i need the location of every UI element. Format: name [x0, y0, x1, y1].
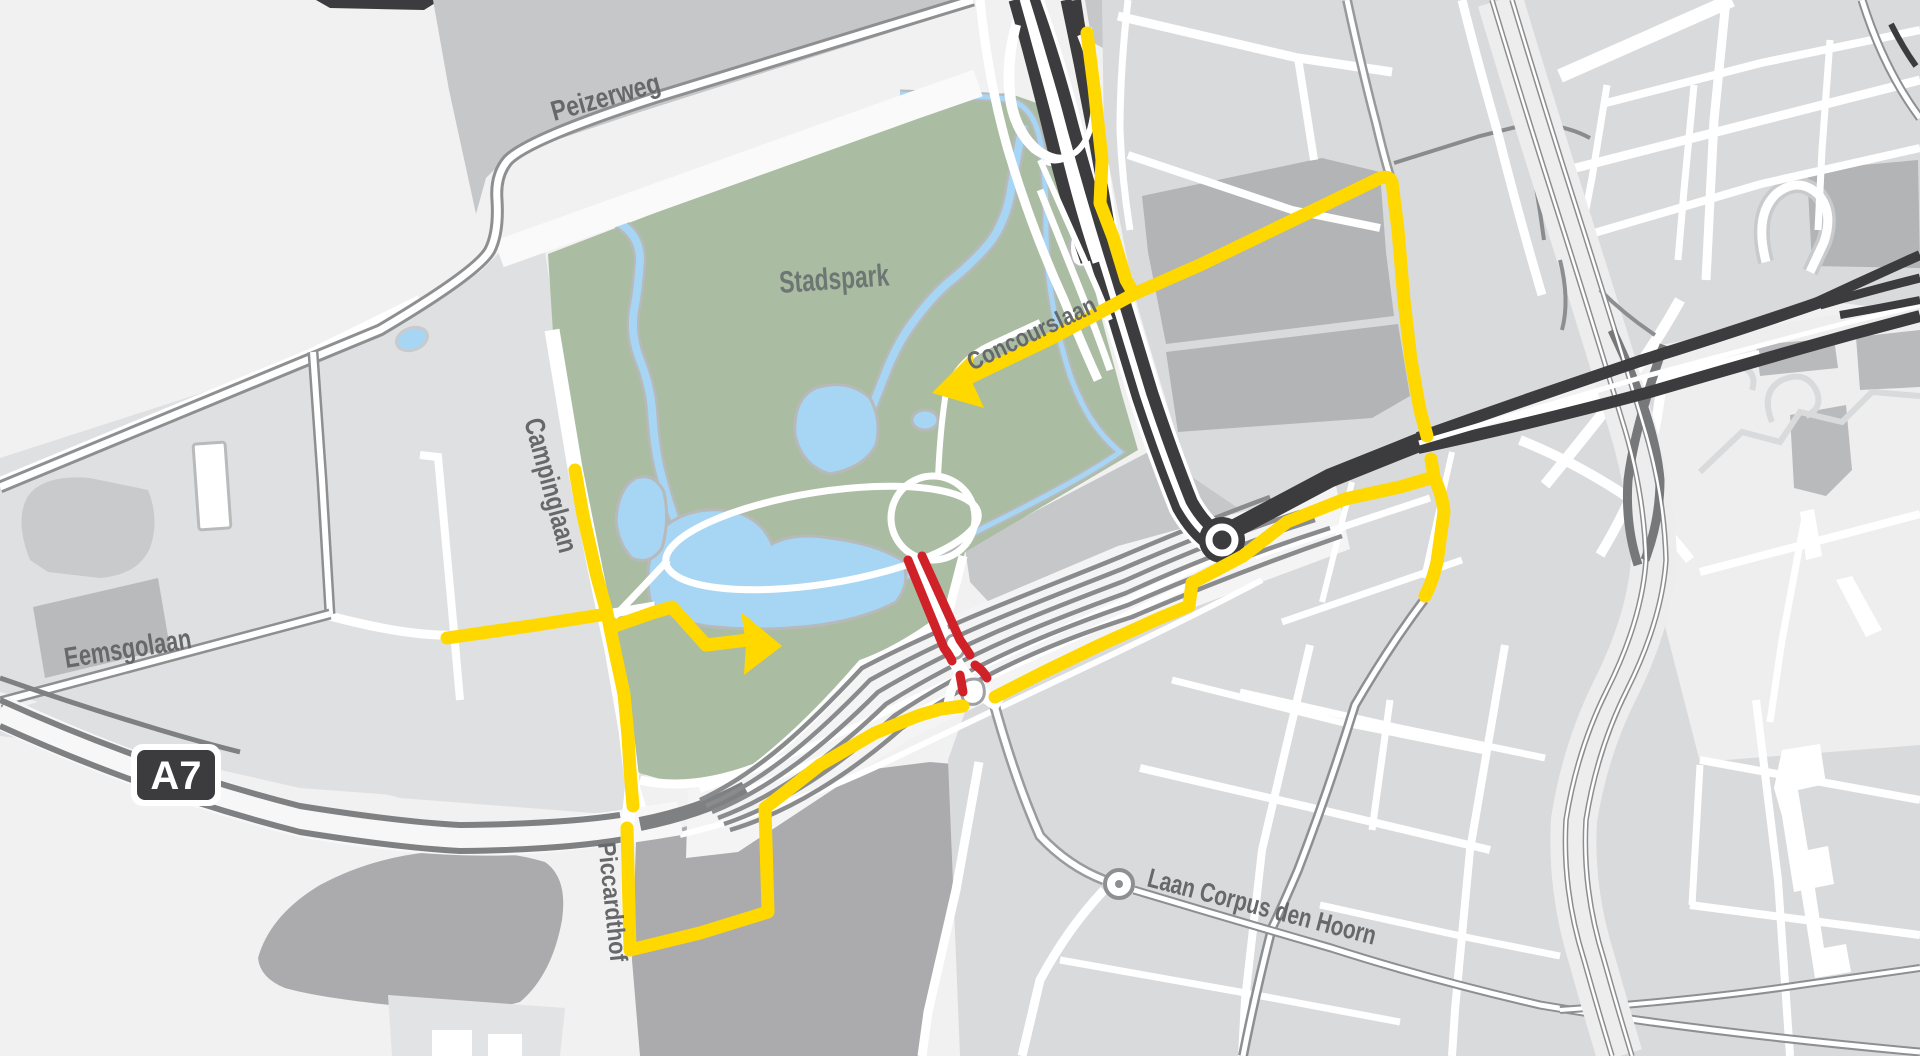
svg-text:A7: A7 — [150, 754, 201, 798]
